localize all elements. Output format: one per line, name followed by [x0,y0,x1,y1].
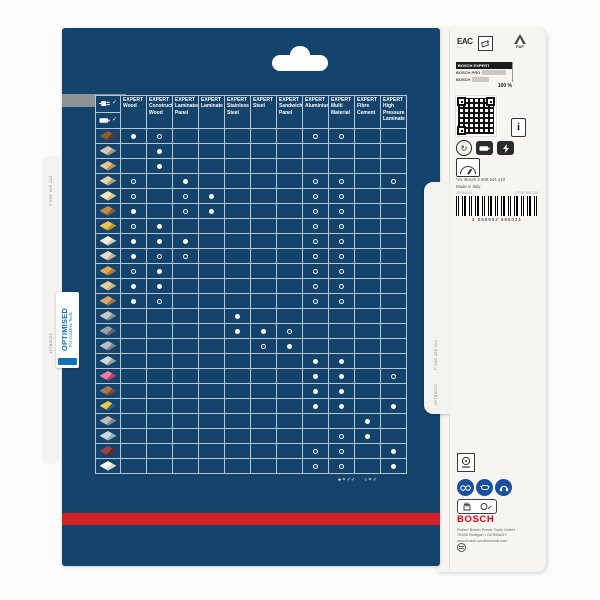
cell-hpl-board-wood [121,444,146,458]
cell-hpl-board-stainless-steel [225,444,250,458]
cell-steel-profiles-wood [121,324,146,338]
cell-construction-timber-construct-wood [147,159,172,173]
filled-dot [339,374,344,379]
cell-laminate-panel-aluminium [303,459,328,473]
cell-solid-wood-laminate [199,129,224,143]
column-header-construct-wood: EXPERTConstruct Wood [147,96,172,128]
material-mdf-board [96,249,120,263]
cell-aluminium-profiles-laminated-panel [173,354,198,368]
cell-hardwood-aluminium [303,264,328,278]
cell-solid-wood-laminated-panel [173,129,198,143]
open-dot [339,179,344,184]
open-dot [339,269,344,274]
cell-multi-material-construct-wood [147,384,172,398]
cell-layered-wood-multi-material [329,294,354,308]
cell-plasterboard-laminated-panel [173,429,198,443]
cell-nailed-wood-aluminium [303,144,328,158]
cell-multilayer-panel-laminate [199,399,224,413]
cell-multi-material-stainless-steel [225,384,250,398]
cell-stainless-steel-sheet-wood [121,309,146,323]
performance-comparison: BOSCH EXPERT BOSCH PRO BOSCH 100 % [456,62,516,83]
material-hardwood [96,264,120,278]
cell-plasterboard-high-pressure-laminate [381,429,406,443]
material-plasterboard [96,429,120,443]
cell-fibre-cement-board-aluminium [303,414,328,428]
material-icon [100,401,117,411]
manufacturer-address: Robert Bosch Power Tools GmbH70538 Stutt… [457,527,515,543]
cell-layered-wood-sandwich-panel [277,294,302,308]
cell-hardwood-construct-wood [147,264,172,278]
open-dot [313,224,318,229]
optimised-blue-bar [58,358,77,365]
cell-hpl-board-construct-wood [147,444,172,458]
cell-plywood-stainless-steel [225,234,250,248]
cell-osb-board-steel [251,219,276,233]
cell-hardwood-fibre-cement [355,264,380,278]
cell-laminate-flooring-fibre-cement [355,189,380,203]
cell-plasterboard-sandwich-panel [277,429,302,443]
material-icon [100,416,117,426]
cell-nailed-wood-stainless-steel [225,144,250,158]
open-dot [157,299,162,304]
package-photo: F 03E 426 110 15TB0025 OPTIMISED For Cor… [0,0,600,600]
cell-construction-timber-stainless-steel [225,159,250,173]
barcode [456,196,538,216]
reference-line [512,62,513,82]
tab-code-bottom: 15TB0025 [433,384,438,405]
filled-dot [183,179,188,184]
cell-plywood-high-pressure-laminate [381,234,406,248]
cell-timber-beams-multi-material [329,279,354,293]
open-dot [131,179,136,184]
cell-mdf-board-stainless-steel [225,249,250,263]
power-icon [497,141,514,155]
cell-plywood-aluminium [303,234,328,248]
cell-fibre-cement-board-multi-material [329,414,354,428]
cell-construction-timber-multi-material [329,159,354,173]
hang-hole-slot [272,55,328,71]
material-solid-wood [96,129,120,143]
cell-solid-wood-steel [251,129,276,143]
cell-steel-profiles-stainless-steel [225,324,250,338]
cell-laminate-panel-steel [251,459,276,473]
cell-chipboard-aluminium [303,174,328,188]
material-icon [100,176,117,186]
cell-chipboard-steel [251,174,276,188]
filled-dot [157,284,162,289]
cell-laminate-flooring-steel [251,189,276,203]
cell-osb-board-sandwich-panel [277,219,302,233]
open-dot [339,239,344,244]
cell-mdf-board-aluminium [303,249,328,263]
material-icon [100,191,117,201]
material-icon [100,146,117,156]
door-tab: F 03E 426 110 15TB0025 [424,182,450,414]
cell-laminate-flooring-laminate [199,189,224,203]
material-acrylic-panel [96,369,120,383]
cell-aluminium-profiles-stainless-steel [225,354,250,368]
ppe-icons [457,479,512,496]
cell-parquet-sandwich-panel [277,204,302,218]
cell-sandwich-panel-high-pressure-laminate [381,339,406,353]
filled-dot [131,134,136,139]
cell-hpl-board-laminate [199,444,224,458]
material-steel-profiles [96,324,120,338]
cell-mdf-board-sandwich-panel [277,249,302,263]
cell-chipboard-high-pressure-laminate [381,174,406,188]
cell-plasterboard-steel [251,429,276,443]
cell-aluminium-profiles-laminate [199,354,224,368]
cell-laminate-panel-laminate [199,459,224,473]
cell-fibre-cement-board-laminated-panel [173,414,198,428]
material-icon [100,311,117,321]
cell-laminate-flooring-aluminium [303,189,328,203]
filled-dot [157,149,162,154]
cell-multilayer-panel-multi-material [329,399,354,413]
cell-nailed-wood-wood [121,144,146,158]
cell-stainless-steel-sheet-laminated-panel [173,309,198,323]
red-stripe [62,513,440,525]
qr-finder-icon [486,97,495,106]
cell-mdf-board-wood [121,249,146,263]
open-dot [287,329,292,334]
column-name: Laminated Panel [175,103,196,116]
qr-finder-icon [457,97,466,106]
open-dot [339,299,344,304]
cell-hardwood-steel [251,264,276,278]
open-dot [339,464,344,469]
filled-dot [209,209,214,214]
cell-parquet-wood [121,204,146,218]
material-icon [100,461,117,471]
open-dot [313,269,318,274]
cell-layered-wood-fibre-cement [355,294,380,308]
column-header-aluminium: EXPERTAluminium [303,96,328,128]
filled-dot [209,194,214,199]
cell-acrylic-panel-stainless-steel [225,369,250,383]
cell-fibre-cement-board-high-pressure-laminate [381,414,406,428]
cell-solid-wood-wood [121,129,146,143]
filled-dot [339,389,344,394]
filled-dot [391,449,396,454]
cell-plywood-laminate [199,234,224,248]
cell-parquet-stainless-steel [225,204,250,218]
cell-stainless-steel-sheet-stainless-steel [225,309,250,323]
open-dot [391,179,396,184]
material-icon [100,161,117,171]
cell-hpl-board-laminated-panel [173,444,198,458]
material-icon [100,431,117,441]
cell-steel-profiles-construct-wood [147,324,172,338]
cell-osb-board-stainless-steel [225,219,250,233]
cell-mdf-board-high-pressure-laminate [381,249,406,263]
cell-hardwood-stainless-steel [225,264,250,278]
cell-steel-profiles-aluminium [303,324,328,338]
cell-osb-board-high-pressure-laminate [381,219,406,233]
cell-solid-wood-sandwich-panel [277,129,302,143]
column-header-sandwich-panel: EXPERTSandwich Panel [277,96,302,128]
cell-parquet-multi-material [329,204,354,218]
cell-multilayer-panel-laminated-panel [173,399,198,413]
cell-sandwich-panel-sandwich-panel [277,339,302,353]
cell-stainless-steel-sheet-sandwich-panel [277,309,302,323]
cell-sandwich-panel-laminated-panel [173,339,198,353]
cell-sandwich-panel-aluminium [303,339,328,353]
cell-fibre-cement-board-stainless-steel [225,414,250,428]
open-dot [183,254,188,259]
cell-laminate-panel-laminated-panel [173,459,198,473]
material-timber-beams [96,279,120,293]
cell-timber-beams-fibre-cement [355,279,380,293]
cell-hpl-board-aluminium [303,444,328,458]
material-icon [100,326,117,336]
cell-chipboard-stainless-steel [225,174,250,188]
cell-plywood-sandwich-panel [277,234,302,248]
cell-mdf-board-construct-wood [147,249,172,263]
cell-aluminium-profiles-construct-wood [147,354,172,368]
cell-fibre-cement-board-sandwich-panel [277,414,302,428]
column-header-stainless-steel: EXPERTStainless Steel [225,96,250,128]
open-dot [261,344,266,349]
material-icon [100,446,117,456]
filled-dot [391,404,396,409]
cell-nailed-wood-multi-material [329,144,354,158]
column-header-high-pressure-laminate: EXPERTHigh Pressure Laminate [381,96,406,128]
address-line: 70538 Stuttgart • GERMANY [457,532,515,537]
cell-laminate-flooring-stainless-steel [225,189,250,203]
disposal-panel-icon [478,36,493,51]
cell-aluminium-profiles-fibre-cement [355,354,380,368]
cell-mdf-board-laminated-panel [173,249,198,263]
dust-mask-icon [476,479,493,496]
cell-mdf-board-laminate [199,249,224,263]
open-dot [157,134,162,139]
feature-icons: ↻ [456,140,514,156]
cell-construction-timber-high-pressure-laminate [381,159,406,173]
cell-timber-beams-wood [121,279,146,293]
cell-acrylic-panel-multi-material [329,369,354,383]
cell-plasterboard-laminate [199,429,224,443]
cell-mdf-board-fibre-cement [355,249,380,263]
cell-osb-board-fibre-cement [355,219,380,233]
material-icon [100,296,117,306]
open-dot [313,449,318,454]
optimised-flag: OPTIMISED For Cordless Tools [56,292,79,368]
bar-bosch: BOSCH [456,77,516,83]
cell-solid-wood-fibre-cement [355,129,380,143]
column-name: Stainless Steel [227,103,248,116]
compare-note: *vs. Bosch 2 608 644 410 [456,177,505,182]
print-code-left: 15TB0025 [456,191,472,195]
cell-multi-material-multi-material [329,384,354,398]
cell-hpl-board-sandwich-panel [277,444,302,458]
material-icon [100,251,117,261]
cell-plywood-steel [251,234,276,248]
cell-layered-wood-laminate [199,294,224,308]
cell-sandwich-panel-wood [121,339,146,353]
cell-fibre-cement-board-steel [251,414,276,428]
filled-dot [157,164,162,169]
cell-acrylic-panel-steel [251,369,276,383]
material-icon [100,221,117,231]
column-header-multi-material: EXPERTMulti Material [329,96,354,128]
cell-sandwich-panel-construct-wood [147,339,172,353]
cell-aluminium-profiles-steel [251,354,276,368]
cell-laminate-panel-fibre-cement [355,459,380,473]
cell-aluminium-profiles-multi-material [329,354,354,368]
cell-chipboard-wood [121,174,146,188]
cell-solid-wood-aluminium [303,129,328,143]
cell-nailed-wood-sandwich-panel [277,144,302,158]
cell-mdf-board-steel [251,249,276,263]
cell-stainless-steel-sheet-aluminium [303,309,328,323]
filled-dot [313,404,318,409]
cell-multilayer-panel-aluminium [303,399,328,413]
cell-timber-beams-sandwich-panel [277,279,302,293]
cordless-battery-icon: ✓ [96,112,120,129]
cell-laminate-panel-multi-material [329,459,354,473]
cell-steel-profiles-high-pressure-laminate [381,324,406,338]
column-name: Laminate [201,103,222,109]
cell-plywood-multi-material [329,234,354,248]
column-name: Fibre Cement [357,103,378,116]
open-dot [339,134,344,139]
cell-hpl-board-multi-material [329,444,354,458]
open-dot [339,224,344,229]
tab-code-top: F 03E 426 110 [433,340,438,370]
cell-laminate-panel-construct-wood [147,459,172,473]
open-dot [339,449,344,454]
cell-osb-board-multi-material [329,219,354,233]
matrix-legend: ● = ✓✓ ○ = ✓ [338,477,377,483]
cell-laminate-flooring-wood [121,189,146,203]
filled-dot [235,314,240,319]
open-dot [313,284,318,289]
blade-handling-icon [457,453,475,472]
cell-hardwood-multi-material [329,264,354,278]
column-name: Construct Wood [149,103,170,116]
cell-laminate-panel-stainless-steel [225,459,250,473]
filled-dot [183,239,188,244]
column-name: High Pressure Laminate [383,103,404,122]
cell-chipboard-laminated-panel [173,174,198,188]
open-dot [313,194,318,199]
column-header-laminate: EXPERTLaminate [199,96,224,128]
material-parquet [96,204,120,218]
cell-timber-beams-construct-wood [147,279,172,293]
filled-dot [391,464,396,469]
cell-multilayer-panel-stainless-steel [225,399,250,413]
cell-stainless-steel-sheet-steel [251,309,276,323]
cell-acrylic-panel-construct-wood [147,369,172,383]
cell-multilayer-panel-sandwich-panel [277,399,302,413]
material-icon [100,386,117,396]
cell-timber-beams-steel [251,279,276,293]
address-line: www.bosch-professional.com [457,538,515,543]
cell-chipboard-construct-wood [147,174,172,188]
optimised-subtitle: For Cordless Tools [69,308,73,351]
cell-fibre-cement-board-fibre-cement [355,414,380,428]
open-dot [131,194,136,199]
bosch-bar [472,77,489,82]
cell-parquet-laminated-panel [173,204,198,218]
qr-finder-icon [457,126,466,135]
cell-plasterboard-construct-wood [147,429,172,443]
cell-plywood-laminated-panel [173,234,198,248]
filled-dot [261,329,266,334]
qr-code [456,96,496,136]
eac-sub-line: –––– [457,47,472,50]
filled-dot [313,359,318,364]
power-type-cell: ✓✓ [96,96,120,128]
open-dot [131,269,136,274]
comparison-value: 100 % [486,83,512,89]
cell-multi-material-steel [251,384,276,398]
cell-hardwood-sandwich-panel [277,264,302,278]
cell-sandwich-panel-multi-material [329,339,354,353]
cell-multi-material-fibre-cement [355,384,380,398]
open-dot [313,299,318,304]
barcode-digits: 4 059952 685021 [456,217,538,222]
open-dot [339,284,344,289]
filled-dot [287,344,292,349]
check-mark: ✓ [112,100,117,108]
filled-dot [365,419,370,424]
cell-multi-material-wood [121,384,146,398]
material-nailed-wood [96,144,120,158]
cell-steel-profiles-multi-material [329,324,354,338]
cell-construction-timber-steel [251,159,276,173]
material-icon [100,371,117,381]
material-icon [100,206,117,216]
filled-dot [157,269,162,274]
cell-nailed-wood-laminate [199,144,224,158]
bosch-logo: BOSCH [457,514,494,525]
cell-multi-material-laminated-panel [173,384,198,398]
cell-construction-timber-fibre-cement [355,159,380,173]
cell-layered-wood-aluminium [303,294,328,308]
cell-multilayer-panel-steel [251,399,276,413]
open-dot [313,464,318,469]
material-icon [100,356,117,366]
filled-dot [313,374,318,379]
cell-steel-profiles-laminate [199,324,224,338]
cell-plywood-wood [121,234,146,248]
max-speed-gauge-icon [456,158,480,177]
filled-dot [131,209,136,214]
cell-solid-wood-stainless-steel [225,129,250,143]
column-name: Sandwich Panel [279,103,300,116]
cell-laminate-panel-high-pressure-laminate [381,459,406,473]
compatibility-matrix: ✓✓EXPERTWoodEXPERTConstruct WoodEXPERTLa… [95,95,407,474]
material-icon [100,281,117,291]
cell-solid-wood-construct-wood [147,129,172,143]
column-name: Wood [123,103,144,109]
cell-acrylic-panel-aluminium [303,369,328,383]
cell-plasterboard-multi-material [329,429,354,443]
cell-acrylic-panel-wood [121,369,146,383]
cell-layered-wood-laminated-panel [173,294,198,308]
filled-dot [157,224,162,229]
cell-laminate-panel-sandwich-panel [277,459,302,473]
print-code-right: F 03E 426 110 [515,191,538,195]
cell-sandwich-panel-stainless-steel [225,339,250,353]
column-name: Aluminium [305,103,326,109]
cell-stainless-steel-sheet-construct-wood [147,309,172,323]
cell-laminate-flooring-high-pressure-laminate [381,189,406,203]
cell-hardwood-wood [121,264,146,278]
material-laminate-panel [96,459,120,473]
